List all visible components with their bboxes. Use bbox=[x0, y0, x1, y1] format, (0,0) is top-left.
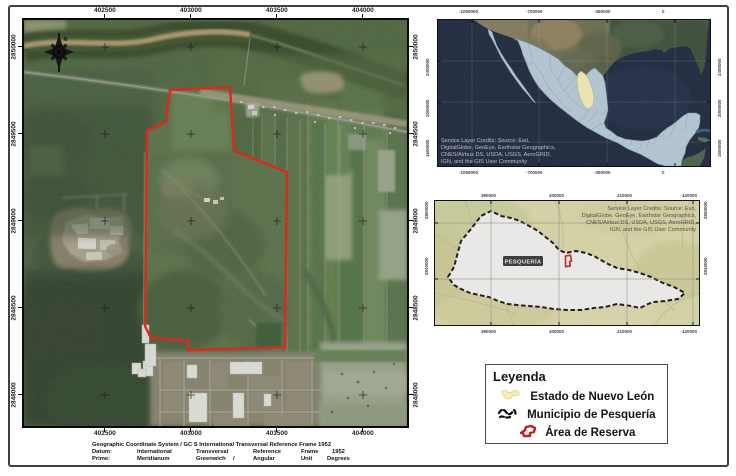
svg-text:DigitalGlobe, GeoEye, Earthsta: DigitalGlobe, GeoEye, Earthstar Geograph… bbox=[441, 145, 556, 151]
svg-text:IGN, and the GIS User Communit: IGN, and the GIS User Community bbox=[610, 227, 696, 233]
svg-text:DigitalGlobe, GeoEye, Earthsta: DigitalGlobe, GeoEye, Earthstar Geograph… bbox=[582, 213, 697, 219]
svg-text:CNES/Airbus DS, USDA, USGS, Ae: CNES/Airbus DS, USDA, USGS, AeroGRID, bbox=[586, 220, 696, 226]
svg-text:Service Layer Credits: Source:: Service Layer Credits: Source: Esri, bbox=[607, 206, 696, 212]
svg-text:N: N bbox=[64, 37, 68, 43]
svg-text:Service Layer Credits: Source:: Service Layer Credits: Source: Esri, bbox=[441, 138, 530, 144]
svg-text:CNES/Airbus DS, USDA, USGS, Ae: CNES/Airbus DS, USDA, USGS, AeroGRID, bbox=[441, 152, 551, 158]
svg-text:IGN, and the GIS User Communit: IGN, and the GIS User Community bbox=[441, 159, 527, 165]
